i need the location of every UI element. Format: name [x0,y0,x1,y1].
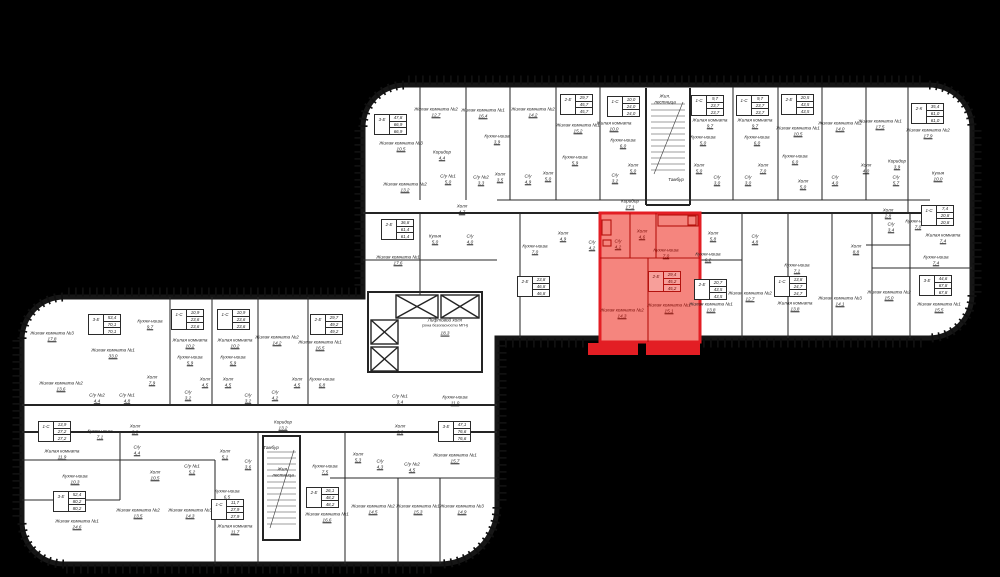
room-label: Холл3,5 [495,171,506,182]
unit-area-value: 35,4 [927,104,943,111]
room-label: Жилая комната №113,8 [689,301,733,312]
room-label: С/у №15,2 [184,463,200,474]
room-label: Холл5,0 [694,162,705,173]
unit-type: 2-Е [311,315,326,334]
room-label: Жилая комната №214,2 [255,334,299,345]
unit-type: 2-К [912,104,927,123]
room-label: Кухня-ниша5,9 [177,354,202,365]
room-label: Жилая комната №116,4 [461,107,505,118]
unit-info-box: 1-С13,927,227,2 [38,421,71,442]
elevator-hall-line2: (зона безопасности МГН) [422,324,468,329]
room-label: С/у3,0 [745,174,752,185]
unit-area-value: 67,8 [935,289,951,295]
room-label: Кухня-ниша6,5 [214,488,239,499]
unit-area-value: 9,7 [707,96,723,103]
room-label: Холл4,5 [200,376,211,387]
room-label: Жилая комната №214,0 [818,120,862,131]
unit-area-value: 23,7 [752,103,768,110]
room-label: Холл5,3 [353,451,364,462]
room-label: С/у4,3 [377,458,384,469]
room-label: Кухня-ниша5,9 [562,154,587,165]
unit-info-box: 2-Е29,745,745,7 [560,94,593,115]
unit-area-value: 24,7 [790,290,806,296]
room-label: Жилая комната11,7 [218,523,253,534]
unit-area-value: 47,1 [454,422,470,429]
unit-area-value: 23,7 [752,109,768,115]
unit-type: 1-С [172,310,187,329]
room-label: Кухня-ниша5,0 [690,134,715,145]
room-label: Жилая комната10,0 [597,120,632,131]
room-label: С/у4,8 [752,233,759,244]
unit-area-value: 9,7 [752,96,768,103]
room-label: Кухня-ниша6,2 [695,251,720,262]
room-label: Коридор13,2 [274,419,292,430]
unit-info-box: 1-С7,420,820,8 [921,205,954,226]
room-label: С/у4,2 [615,238,622,249]
unit-area-value: 23,8 [533,277,549,284]
room-label: Холл5,0 [628,162,639,173]
unit-type: 3-Е [439,422,454,441]
room-label: С/у3,2 [612,172,619,183]
room-label: Кухня-ниша6,8 [309,376,334,387]
room-label: Жилая комната10,2 [173,337,208,348]
unit-area-value: 80,2 [69,505,85,511]
unit-info-box: 3-Е47,866,966,9 [374,114,407,135]
room-label: Жилая комната №115,7 [433,452,477,463]
unit-area-value: 7,4 [937,206,953,213]
room-label: Кухня-ниша3,9 [484,133,509,144]
room-label: Жилая комната №116,5 [298,339,342,350]
unit-area-value: 80,2 [69,499,85,506]
unit-info-box: 2-Е20,743,543,5 [694,279,727,300]
unit-type: 1-С [922,206,937,225]
unit-info-box: 1-С10,923,623,6 [217,309,250,330]
room-label: Жилая комната №115,3 [396,503,440,514]
room-label: Коридор4,4 [433,149,451,160]
elevator-shaft [396,295,438,318]
room-label: Жилая комната №212,7 [728,290,772,301]
unit-area-value: 20,7 [710,280,726,287]
room-label: Кухня-ниша6,0 [782,153,807,164]
unit-type: 2-Е [518,277,533,296]
floor-plan: Лифтовой холл (зона безопасности МГН) 18… [0,0,1000,577]
room-label: Холл3,8 [130,423,141,434]
unit-info-box: 2-Е36,861,461,4 [381,219,414,240]
room-label: Жилая комната №133,0 [91,347,135,358]
room-label: Тамбур [668,177,684,183]
room-label: Жилая комната10,2 [218,337,253,348]
unit-area-value: 23,6 [233,323,249,329]
elevator-shaft [371,347,398,371]
room-label: С/у №24,5 [404,461,420,472]
unit-type: 1-С [218,310,233,329]
elevator-hall-area: 18,3 [422,330,468,336]
unit-type: 1-С [39,422,54,441]
room-label: Кухня-ниша6,0 [744,134,769,145]
unit-area-value: 27,9 [227,513,243,519]
unit-type: 1-С [775,277,790,296]
unit-type: 2-Е [382,220,397,239]
room-label: Холл5,0 [543,170,554,181]
room-label: С/у4,0 [832,174,839,185]
unit-info-box: 1-С10,923,623,6 [171,309,204,330]
building-silhouette [22,85,972,564]
room-label: Холл6,6 [395,423,406,434]
unit-area-value: 23,6 [187,317,203,324]
elevator-hall-label: Лифтовой холл (зона безопасности МГН) 18… [422,318,468,337]
unit-info-box: 3-Е53,470,170,1 [88,314,121,335]
unit-area-value: 46,8 [533,284,549,291]
room-label: Кухня-ниша7,5 [312,463,337,474]
unit-area-value: 29,7 [576,95,592,102]
room-label: Жилая комната9,7 [738,117,773,128]
unit-area-value: 48,2 [322,501,338,507]
room-label: Холл5,8 [708,230,719,241]
unit-info-box: 1-С9,723,723,7 [691,95,724,116]
room-label: Жилая комната №213,6 [39,380,83,391]
room-label: Кухня-ниша7,0 [653,247,678,258]
room-label: С/у №13,4 [392,393,408,404]
room-label: Жилая комната №116,6 [305,511,349,522]
room-label: Кухня-ниша10,3 [62,473,87,484]
unit-info-box: 2-Е29,749,249,2 [310,314,343,335]
unit-area-value: 13,8 [790,277,806,284]
unit-area-value: 61,4 [397,227,413,234]
room-label: Жилая комната №110,5 [776,125,820,136]
building-outline [0,0,1000,577]
unit-area-value: 13,9 [54,422,70,429]
unit-type: 2-Е [649,272,664,291]
room-label: Жилая комната №217,9 [906,127,950,138]
room-label: Кухня-ниша7,1 [784,262,809,273]
unit-area-value: 20,8 [937,219,953,225]
unit-area-value: 43,5 [797,108,813,114]
room-label: Тамбур [263,445,279,451]
unit-info-box: 1-С9,723,723,7 [736,95,769,116]
room-label: Холл4,5 [292,376,303,387]
room-label: Жилая комната №314,3 [168,507,212,518]
room-label: Жилая комната13,8 [778,300,813,311]
room-label: Жилая комната №314,9 [440,503,484,514]
unit-area-value: 11,7 [227,500,243,507]
room-label: Жилая комната №314,1 [818,295,862,306]
balcony-highlight [588,343,638,355]
unit-area-value: 23,6 [233,317,249,324]
elevator-shaft [371,320,398,344]
unit-type: 2-Е [782,95,797,114]
room-label: Жилая комната №214,5 [351,503,395,514]
room-label: Коридор3,9 [888,158,906,169]
room-label: Жилая комната №115,1 [647,302,691,313]
room-label: Жилая комната7,4 [926,232,961,243]
unit-area-value: 48,2 [322,495,338,502]
unit-area-value: 45,2 [664,279,680,286]
unit-type: 3-Е [375,115,390,134]
room-label: Кухня-ниша9,7 [137,318,162,329]
unit-area-value: 20,5 [797,95,813,102]
unit-area-value: 67,8 [935,283,951,290]
unit-area-value: 23,6 [187,323,203,329]
unit-type: 2-Е [561,95,576,114]
unit-area-value: 45,2 [664,285,680,291]
unit-info-box: 3-Е47,176,676,6 [438,421,471,442]
room-label: Жилая комната №214,3 [600,307,644,318]
room-label: Жилая комната №124,6 [55,518,99,529]
unit-info-box: 2-Е20,543,543,5 [781,94,814,115]
room-label: С/у3,0 [714,174,721,185]
room-label: Жилая комната №115,5 [917,301,961,312]
room-label: Жилая комната №117,5 [858,118,902,129]
room-label: С/у №24,4 [89,392,105,403]
room-label: Холл10,5 [150,469,161,480]
room-label: Холл4,6 [637,228,648,239]
unit-info-box: 3-Е52,480,280,2 [53,491,86,512]
room-label: Коридор17,1 [621,198,639,209]
unit-type: 2-Е [695,280,710,299]
elevator-shaft [441,295,479,318]
unit-area-value: 27,9 [227,507,243,514]
room-label: С/у4,2 [272,389,279,400]
unit-area-value: 36,8 [397,220,413,227]
unit-area-value: 43,5 [710,287,726,294]
room-label: Кухня10,0 [932,170,944,181]
room-label: Жилая комната11,9 [45,448,80,459]
room-label: Жилая комната №213,5 [116,507,160,518]
unit-area-value: 45,7 [576,108,592,114]
unit-area-value: 43,5 [710,293,726,299]
unit-area-value: 49,2 [326,328,342,334]
room-label: С/у4,4 [134,444,141,455]
room-label: Жилая комната №117,6 [376,254,420,265]
room-label: С/у4,0 [467,233,474,244]
room-label: Холл5,1 [220,448,231,459]
room-label: Жилая комната №310,5 [379,140,423,151]
unit-info-box: 2-Е26,148,248,2 [306,487,339,508]
unit-area-value: 61,0 [927,111,943,118]
unit-area-value: 47,8 [390,115,406,122]
unit-info-box: 2-К35,461,061,0 [911,103,944,124]
room-label: С/у №15,0 [440,173,456,184]
unit-area-value: 26,1 [322,488,338,495]
room-label: С/у3,6 [245,458,252,469]
unit-area-value: 66,9 [390,128,406,134]
unit-area-value: 61,0 [927,117,943,123]
room-label: Холл8,8 [851,243,862,254]
room-label: Холл7,9 [147,374,158,385]
unit-area-value: 66,9 [390,122,406,129]
room-label: С/у3,2 [185,389,192,400]
unit-area-value: 24,0 [623,104,639,111]
room-label: Холл5,0 [798,178,809,189]
unit-area-value: 10,9 [233,310,249,317]
room-label: Жил.лестница [654,93,676,104]
floor-plan-screenshot: Лифтовой холл (зона безопасности МГН) 18… [0,0,1000,577]
room-label: Холл4,7 [457,203,468,214]
unit-area-value: 29,4 [664,272,680,279]
unit-area-value: 45,7 [576,102,592,109]
unit-area-value: 27,2 [54,429,70,436]
room-label: Кухня-ниша7,1 [87,428,112,439]
unit-info-box: 1-С11,727,927,9 [211,499,244,520]
unit-type: 3-Е [89,315,104,334]
room-label: Жилая комната №215,0 [867,289,911,300]
room-label: Холл4,0 [861,162,872,173]
unit-info-box: 2-Е23,846,846,8 [517,276,550,297]
unit-area-value: 10,9 [187,310,203,317]
room-label: Жил.лестница [272,466,294,477]
room-label: Кухня-ниша5,9 [220,354,245,365]
room-label: С/у5,7 [893,174,900,185]
unit-area-value: 20,8 [937,213,953,220]
room-label: Кухня-ниша11,0 [442,394,467,405]
unit-area-value: 10,0 [623,97,639,104]
unit-info-box: 3-Е44,667,867,8 [919,275,952,296]
unit-info-box-highlighted: 2-Е29,445,245,2 [648,271,681,292]
unit-area-value: 24,7 [790,284,806,291]
room-label: Жилая комната №115,2 [556,122,600,133]
room-label: Кухня-ниша6,0 [610,137,635,148]
unit-type: 1-С [212,500,227,519]
unit-type: 3-Е [54,492,69,511]
unit-type: 1-С [608,97,623,116]
room-label: Жилая комната9,7 [693,117,728,128]
room-label: С/у №14,8 [119,392,135,403]
room-label: С/у3,4 [888,221,895,232]
unit-info-box: 1-С13,824,724,7 [774,276,807,297]
unit-area-value: 24,0 [623,110,639,116]
unit-area-value: 70,1 [104,322,120,329]
unit-type: 2-Е [307,488,322,507]
room-label: Кухня5,0 [429,233,441,244]
unit-area-value: 70,1 [104,328,120,334]
unit-area-value: 29,7 [326,315,342,322]
room-label: Кухня-ниша7,0 [522,243,547,254]
unit-type: 1-С [692,96,707,115]
room-label: С/у4,2 [589,239,596,250]
room-label: Жилая комната №212,7 [414,106,458,117]
room-label: Холл4,5 [223,376,234,387]
unit-info-box: 1-С10,024,024,0 [607,96,640,117]
unit-area-value: 44,6 [935,276,951,283]
unit-area-value: 53,4 [104,315,120,322]
room-label: Холл2,8 [883,207,894,218]
unit-area-value: 23,7 [707,109,723,115]
room-label: Холл7,0 [758,162,769,173]
unit-area-value: 52,4 [69,492,85,499]
unit-type: 3-Е [920,276,935,295]
unit-area-value: 76,6 [454,435,470,441]
unit-area-value: 61,4 [397,233,413,239]
room-label: С/у3,2 [245,392,252,403]
room-label: Кухня-ниша7,4 [923,254,948,265]
room-label: С/у №23,3 [473,174,489,185]
unit-type: 1-С [737,96,752,115]
room-label: С/у4,9 [525,173,532,184]
unit-area-value: 23,7 [707,103,723,110]
unit-area-value: 43,5 [797,102,813,109]
room-label: Жилая комната №317,8 [30,330,74,341]
room-label: Жилая комната №213,2 [383,181,427,192]
room-label: Холл4,9 [558,230,569,241]
unit-area-value: 46,8 [533,290,549,296]
unit-area-value: 27,2 [54,435,70,441]
unit-area-value: 49,2 [326,322,342,329]
unit-area-value: 76,6 [454,429,470,436]
balcony-highlight [646,343,700,355]
room-label: Жилая комната №214,2 [511,106,555,117]
